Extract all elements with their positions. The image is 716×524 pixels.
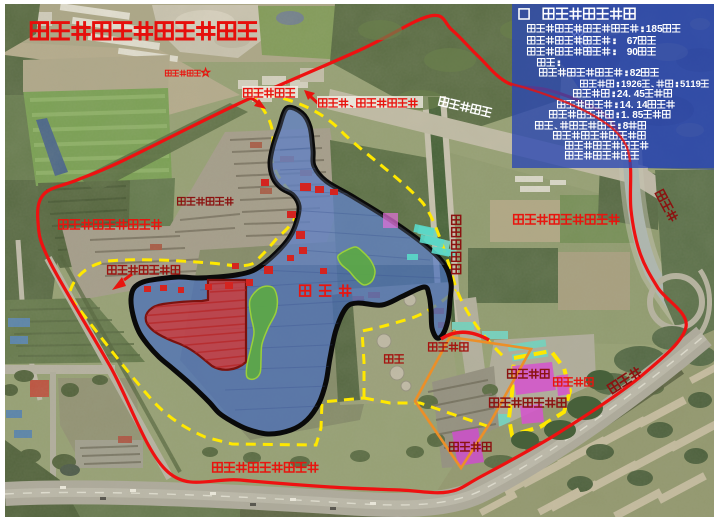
svg-text:7: 7 xyxy=(632,36,638,47)
svg-text:.: . xyxy=(627,110,630,121)
svg-text:5: 5 xyxy=(638,110,644,121)
svg-text:9: 9 xyxy=(696,78,701,89)
svg-text:5: 5 xyxy=(639,89,645,100)
svg-text:0: 0 xyxy=(632,47,638,58)
svg-text:6: 6 xyxy=(637,78,642,89)
svg-text:.: . xyxy=(628,89,631,100)
svg-text:8: 8 xyxy=(623,121,629,132)
svg-text:5: 5 xyxy=(657,24,663,35)
